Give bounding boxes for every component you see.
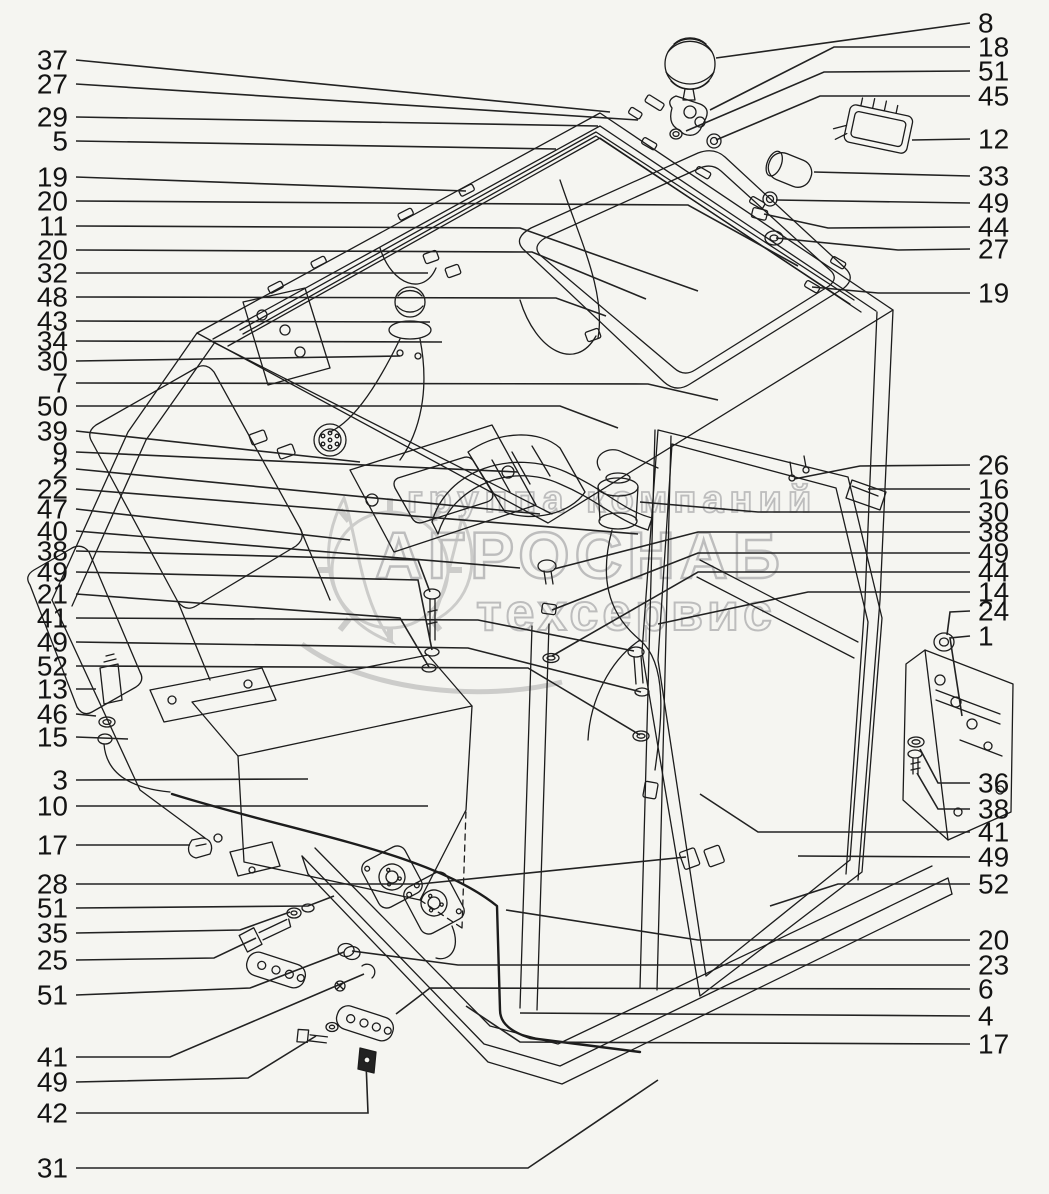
leader-line-right-41 [700,794,970,832]
lamp-bracket-icon [670,96,721,148]
parts-diagram: группа компанийАГРОСНАБтехсервис [0,0,1049,1194]
leader-line-left-39 [76,431,360,462]
leader-line-left-48 [76,297,606,316]
leader-line-left-29 [76,117,598,126]
leader-line-left-43 [76,321,430,322]
watermark-text-0: группа компаний [407,479,817,521]
leader-line-left-52 [76,666,640,735]
callout-number-right-12: 12 [978,124,1009,155]
leader-line-right-4 [520,1013,970,1016]
diagram-page: группа компанийАГРОСНАБтехсервис [0,0,1049,1194]
leader-line-right-26 [794,465,970,479]
callout-number-right-4: 4 [978,1001,994,1032]
leader-line-right-36 [920,749,970,783]
callout-number-right-17: 17 [978,1029,1009,1060]
callout-number-left-17: 17 [37,830,68,861]
leader-line-left-46 [76,714,96,716]
callout-number-left-25: 25 [37,945,68,976]
leader-line-left-21 [76,594,429,667]
leader-line-right-20 [506,910,970,940]
leader-line-left-27 [76,84,638,120]
leader-line-left-7 [76,383,718,400]
callout-number-left-51: 51 [37,980,68,1011]
callout-number-left-42: 42 [37,1098,68,1129]
leader-line-left-5 [76,141,556,149]
leader-line-right-49 [798,856,970,857]
fuse-cylinder-icon [763,148,816,191]
callout-number-right-27: 27 [978,234,1009,265]
leader-line-left-30 [76,356,400,361]
callout-number-left-49: 49 [37,1067,68,1098]
callout-number-right-52: 52 [978,869,1009,900]
callout-number-left-5: 5 [52,126,68,157]
callout-number-right-19: 19 [978,278,1009,309]
leader-line-left-3 [76,779,308,780]
callout-number-left-15: 15 [37,722,68,753]
leader-line-left-51 [76,896,334,908]
leader-line-left-34 [76,341,442,342]
callout-number-left-31: 31 [37,1153,68,1184]
relay-icon [831,92,915,155]
callout-number-left-10: 10 [37,791,68,822]
cab-marker-lamp-icon [665,38,715,100]
leader-line-right-24 [947,611,970,635]
leader-line-left-41 [76,974,364,1057]
callout-number-left-27: 27 [37,69,68,100]
leader-line-right-49 [776,200,970,203]
harness-clip-icons [267,137,846,294]
leader-line-right-18 [710,47,970,110]
leader-line-left-19 [76,177,466,191]
leader-line-left-49 [76,1036,316,1082]
round-connector-icon [314,424,346,456]
leader-line-right-33 [814,172,970,176]
leader-line-left-47 [76,509,350,540]
callout-number-right-1: 1 [978,621,994,652]
leader-line-right-12 [912,139,970,140]
leader-line-left-25 [76,938,256,960]
leader-line-right-1 [950,636,970,716]
leader-line-left-37 [76,60,610,112]
callout-number-right-45: 45 [978,81,1009,112]
leader-line-left-20 [76,201,798,266]
leader-line-right-6 [396,988,970,1014]
socket-plate-icons [359,843,468,959]
leader-line-right-8 [716,23,970,58]
leader-line-left-42 [76,1062,368,1113]
leader-line-right-44 [764,214,970,228]
leader-line-left-35 [76,912,290,933]
leader-line-left-15 [76,737,128,739]
